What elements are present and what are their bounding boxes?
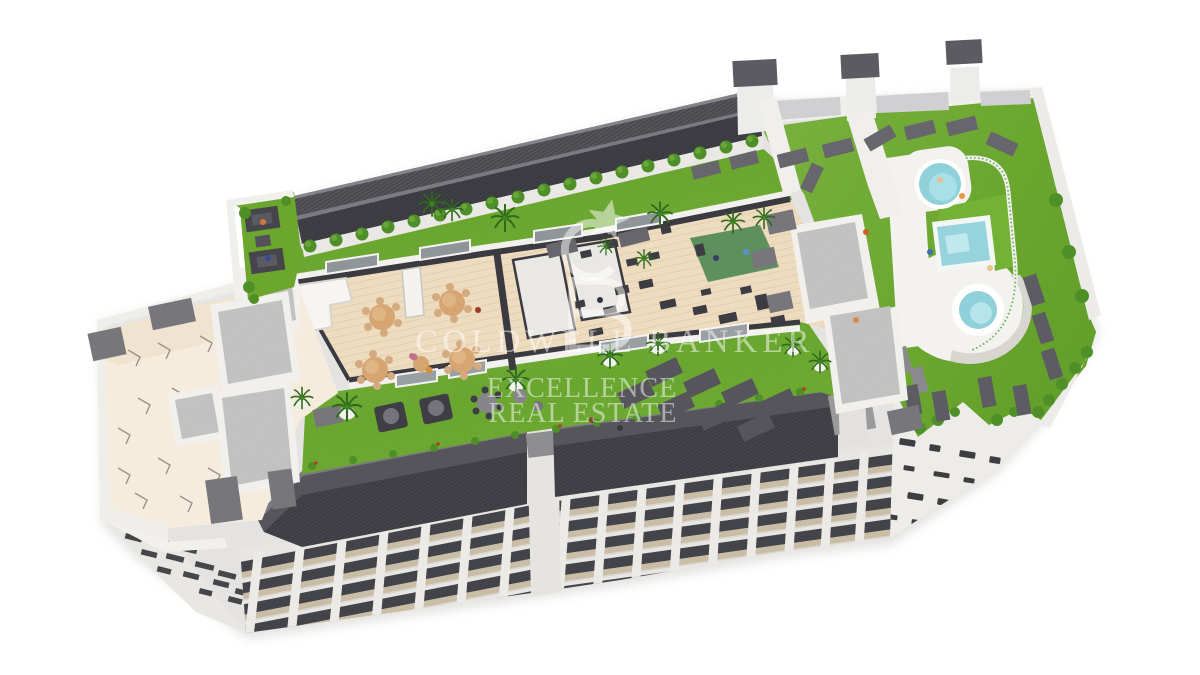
svg-text:REAL ESTATE: REAL ESTATE — [489, 398, 678, 429]
svg-text:COLDWELL BANKER: COLDWELL BANKER — [415, 324, 814, 360]
